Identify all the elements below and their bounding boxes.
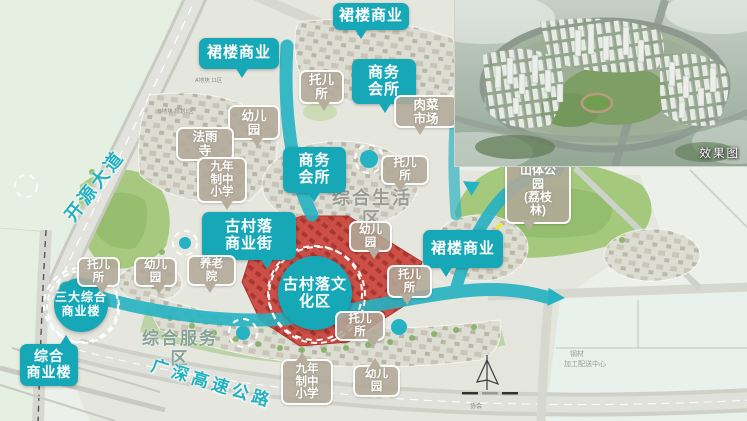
callout-tail: [413, 124, 427, 135]
callout-text: 幼儿 园: [365, 368, 388, 394]
callout-nursery: 托儿 所: [381, 155, 429, 185]
callout-text: 幼儿 园: [144, 259, 167, 285]
callout-tail: [400, 294, 414, 305]
callout-tail: [260, 258, 274, 269]
callout-text: 托儿 所: [398, 269, 421, 295]
callout-text: 古村落 商业街: [225, 219, 273, 253]
callout-kindergarten: 幼儿 园: [134, 257, 177, 287]
callout-tail: [354, 28, 368, 39]
callout-tail: [152, 283, 166, 294]
callout-text: 山体公 园 (荔枝 林): [520, 164, 556, 218]
callout-text: 综合 商业楼: [27, 349, 72, 380]
callout-wet-market: 肉菜 市场: [394, 95, 458, 128]
callout-tail: [522, 220, 536, 231]
callout-podium-commercial: 裙楼商业: [423, 230, 503, 268]
callout-kindergarten: 幼儿 园: [228, 105, 280, 140]
callout-kindergarten: 幼儿 园: [353, 365, 400, 397]
callout-temple: 法雨 寺: [176, 127, 234, 161]
callout-business-club: 商务 会所: [283, 147, 346, 193]
callout-kindergarten: 幼儿 园: [349, 221, 392, 252]
callout-tail: [366, 337, 380, 348]
callout-tail: [235, 67, 249, 78]
callout-text: 托儿 所: [349, 313, 372, 339]
callout-text: 商务 会所: [298, 153, 330, 187]
callout-comprehensive-commercial: 综合 商业楼: [20, 344, 78, 386]
callout-podium-commercial: 裙楼商业: [199, 38, 279, 69]
callout-tail: [378, 102, 392, 113]
callout-tail: [393, 181, 407, 192]
callout-text: 托儿 所: [87, 259, 110, 285]
callout-text: 养老 院: [200, 258, 223, 284]
callout-nursery: 托儿 所: [387, 265, 432, 298]
aerial-rendering-image: [455, 0, 747, 166]
callout-nine-year-school: 九年 制中 小学: [281, 359, 333, 405]
master-plan-map: A地块 11区 B地块 规划1区 协会 钢材 加工配送中心 综合生活 区 综合服…: [0, 0, 747, 421]
callout-text: 九年 制中 小学: [211, 161, 234, 200]
callout-tail: [367, 248, 381, 259]
callout-tail: [307, 191, 321, 202]
callout-mountain-park-lychee: 山体公 园 (荔枝 林): [505, 158, 571, 224]
callout-tail: [95, 283, 109, 294]
callout-tail: [368, 358, 382, 369]
callout-text: 裙楼商业: [339, 8, 403, 25]
callout-text: 法雨 寺: [192, 130, 217, 158]
road-label-kaiyuan-avenue: 开源大道: [58, 116, 152, 227]
callout-text: 幼儿 园: [359, 224, 382, 250]
callout-text: 裙楼商业: [431, 241, 495, 258]
callout-nine-year-school: 九年 制中 小学: [197, 157, 247, 203]
callout-text: 商务 会所: [368, 65, 400, 99]
callout-podium-commercial: 裙楼商业: [333, 3, 409, 30]
callout-tail: [317, 100, 331, 111]
callout-ancient-village-street: 古村落 商业街: [202, 212, 296, 260]
inset-caption: 效果图: [700, 145, 741, 161]
callout-tail: [439, 266, 453, 277]
callout-tail: [295, 352, 309, 363]
callout-nursing-home: 养老 院: [187, 255, 236, 286]
callout-tail: [220, 199, 234, 210]
callout-text: 托儿 所: [309, 73, 334, 101]
aerial-rendering-inset: 效果图: [454, 0, 747, 167]
callout-text: 肉菜 市场: [413, 98, 438, 126]
callout-text: 幼儿 园: [241, 109, 266, 137]
callout-nursery: 托儿 所: [299, 70, 344, 104]
callout-text: 托儿 所: [394, 157, 417, 183]
callout-tail: [59, 335, 73, 346]
callout-tail: [203, 282, 217, 293]
callout-text: 九年 制中 小学: [296, 363, 319, 402]
callout-text: 裙楼商业: [207, 45, 271, 62]
callout-nursery: 托儿 所: [335, 311, 385, 341]
callout-tail: [250, 136, 264, 147]
callout-nursery: 托儿 所: [77, 257, 120, 287]
